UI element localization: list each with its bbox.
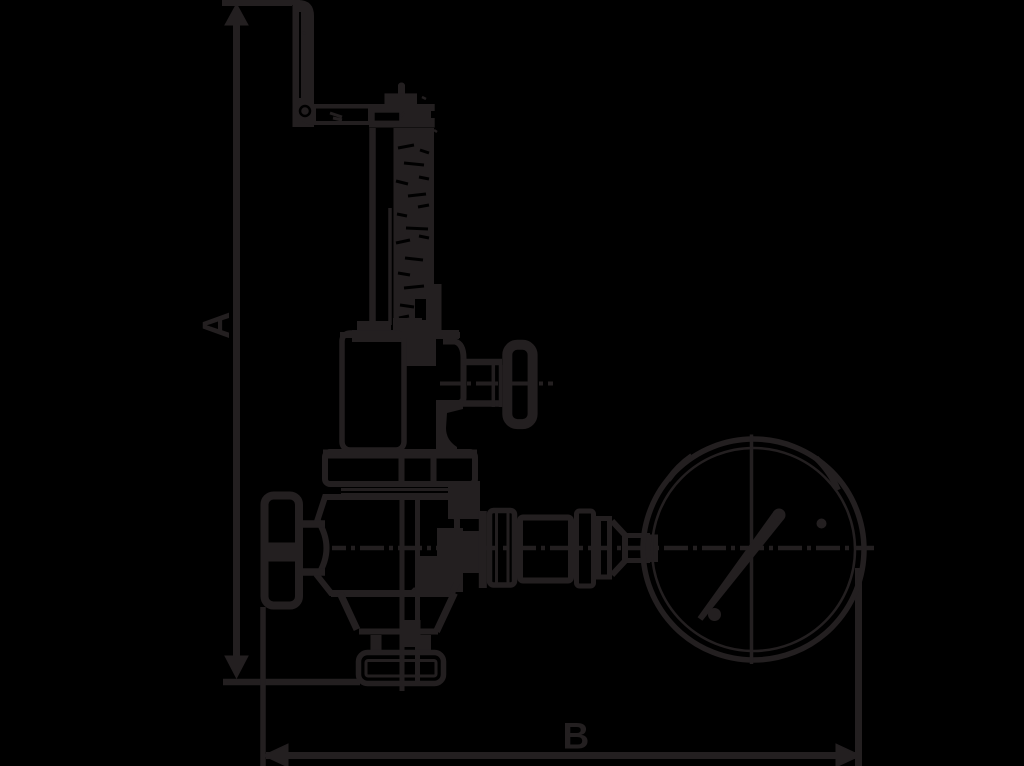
svg-text:A: A (196, 312, 238, 339)
svg-text:B: B (563, 716, 590, 757)
